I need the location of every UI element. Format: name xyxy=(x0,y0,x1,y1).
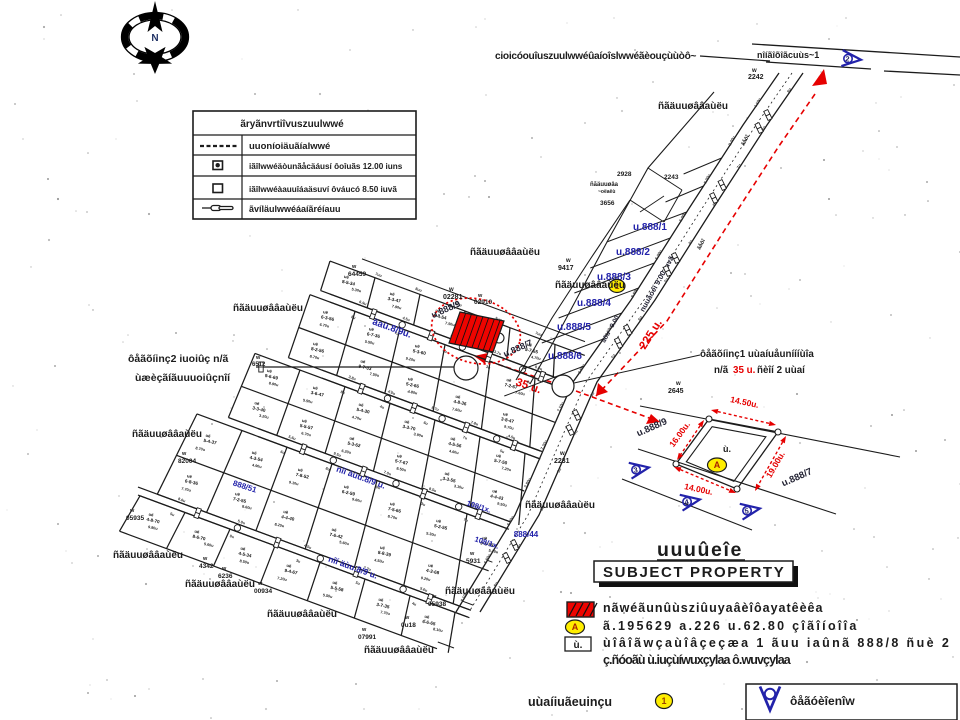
svg-text:5.50u: 5.50u xyxy=(303,398,314,404)
svg-text:nîí äùu.8/9 u.: nîí äùu.8/9 u. xyxy=(335,464,387,491)
svg-text:7u: 7u xyxy=(462,435,468,441)
svg-text:4-4-43: 4-4-43 xyxy=(490,493,504,501)
svg-text:8-5-34: 8-5-34 xyxy=(341,279,355,287)
svg-text:w: w xyxy=(221,566,227,572)
svg-text:A: A xyxy=(572,622,579,632)
svg-text:2645: 2645 xyxy=(668,388,684,395)
svg-text:4342: 4342 xyxy=(199,563,214,570)
svg-text:5-4-30: 5-4-30 xyxy=(356,407,370,415)
svg-text:9u: 9u xyxy=(229,534,235,540)
svg-text:1: 1 xyxy=(661,696,666,706)
svg-text:w: w xyxy=(404,615,410,621)
svg-text:5.60u: 5.60u xyxy=(204,542,215,548)
svg-text:ñãäuuøââaùëu: ñãäuuøââaùëu xyxy=(132,429,202,440)
svg-text:ñãäuuøââaùëu: ñãäuuøââaùëu xyxy=(658,101,728,112)
svg-text:u.888/6: u.888/6 xyxy=(548,351,582,362)
svg-text:0u18: 0u18 xyxy=(401,622,416,629)
svg-text:ç.ñóoãù ù.iuçùíwuxçylaa ô.wuvç: ç.ñóoãù ù.iuçùíwuxçylaa ô.wuvçylaa xyxy=(603,653,792,667)
svg-text:6u: 6u xyxy=(637,315,644,322)
svg-text:~oëaêù: ~oëaêù xyxy=(598,189,615,195)
svg-text:2928: 2928 xyxy=(617,171,632,178)
svg-text:9-6-69: 9-6-69 xyxy=(264,373,278,381)
svg-text:8.50u: 8.50u xyxy=(396,467,407,473)
svg-text:7-8-52: 7-8-52 xyxy=(295,472,309,480)
svg-text:w: w xyxy=(361,627,367,633)
svg-text:4-8-36: 4-8-36 xyxy=(453,399,467,407)
svg-text:6512: 6512 xyxy=(252,362,266,368)
svg-text:5.30u: 5.30u xyxy=(351,287,362,293)
svg-text:w: w xyxy=(469,551,475,557)
svg-text:5-5-58: 5-5-58 xyxy=(330,585,344,593)
svg-text:6.70u: 6.70u xyxy=(319,323,330,329)
svg-text:9-4-67: 9-4-67 xyxy=(284,568,298,576)
svg-text:A: A xyxy=(714,460,721,470)
svg-text:ñèîí 2 uùaí: ñèîí 2 uùaí xyxy=(757,365,805,376)
svg-text:5u: 5u xyxy=(355,581,361,587)
svg-text:6-3-56: 6-3-56 xyxy=(321,314,335,322)
svg-text:uuoníoiäuãíalwwé: uuoníoiäuãíalwwé xyxy=(249,141,330,152)
svg-text:SUBJECT PROPERTY: SUBJECT PROPERTY xyxy=(603,564,785,581)
svg-text:3-3-47: 3-3-47 xyxy=(387,296,401,304)
svg-text:n/ã: n/ã xyxy=(714,365,729,376)
svg-text:4-8-70: 4-8-70 xyxy=(146,517,160,525)
svg-text:8u: 8u xyxy=(786,87,793,94)
svg-text:uùaíiuãeuinçu: uùaíiuãeuinçu xyxy=(528,695,612,709)
svg-text:7.60u: 7.60u xyxy=(452,407,463,413)
svg-text:8.70u: 8.70u xyxy=(309,354,320,360)
svg-text:4.70u: 4.70u xyxy=(351,415,362,421)
svg-text:u.888/7: u.888/7 xyxy=(780,466,814,489)
svg-text:3-6-47: 3-6-47 xyxy=(310,390,324,398)
svg-text:05935: 05935 xyxy=(126,515,144,522)
svg-text:cioicóouîuszuulwwéûaíoîslwwéãè: cioicóouîuszuulwwéûaíoîslwwéãèouçùùòô~ xyxy=(495,51,697,62)
svg-text:8uu: 8uu xyxy=(415,287,423,293)
svg-text:ôåãõíinç2 iuoiûç n/ã: ôåãõíinç2 iuoiûç n/ã xyxy=(128,353,229,365)
svg-text:8.60u: 8.60u xyxy=(242,505,253,511)
svg-text:8.10u: 8.10u xyxy=(433,627,444,633)
svg-text:888/44: 888/44 xyxy=(514,530,539,539)
svg-text:ù.: ù. xyxy=(723,444,731,454)
svg-text:5-4-37: 5-4-37 xyxy=(203,438,217,446)
svg-text:w: w xyxy=(751,68,757,74)
svg-text:7.50u: 7.50u xyxy=(445,321,456,327)
svg-text:7u: 7u xyxy=(735,163,742,170)
svg-text:02910: 02910 xyxy=(474,299,492,306)
svg-text:3656: 3656 xyxy=(600,200,615,207)
svg-text:3.10u: 3.10u xyxy=(454,484,465,490)
svg-text:9.20u: 9.20u xyxy=(420,576,431,582)
svg-text:nuuãoéí 9.00 iuvã: nuuãoéí 9.00 iuvã xyxy=(638,254,677,314)
svg-text:2243: 2243 xyxy=(664,174,679,181)
svg-text:ã.195629 a.226 u.62.80 çîãîí: ã.195629 a.226 u.62.80 çîãîíoîîa xyxy=(603,619,859,633)
svg-text:w: w xyxy=(675,381,681,387)
svg-text:8.90u: 8.90u xyxy=(268,381,279,387)
svg-text:6-7-36: 6-7-36 xyxy=(366,331,380,339)
svg-text:7u: 7u xyxy=(463,518,469,524)
svg-text:9.70u: 9.70u xyxy=(504,425,515,431)
svg-text:8.70u: 8.70u xyxy=(387,514,398,520)
svg-text:6-8-36: 6-8-36 xyxy=(184,478,198,486)
svg-text:5-3-60: 5-3-60 xyxy=(412,348,426,356)
svg-text:3u: 3u xyxy=(420,502,426,508)
svg-text:3.20u: 3.20u xyxy=(259,414,270,420)
svg-text:6.70u: 6.70u xyxy=(301,431,312,437)
svg-text:u.888/4: u.888/4 xyxy=(577,298,611,309)
svg-text:7.20u: 7.20u xyxy=(501,466,512,472)
svg-text:9.10u: 9.10u xyxy=(289,480,300,486)
svg-text:7-5-66: 7-5-66 xyxy=(387,506,401,514)
svg-text:2242: 2242 xyxy=(748,74,764,81)
svg-text:8.70u: 8.70u xyxy=(195,446,206,452)
svg-text:5-2-66: 5-2-66 xyxy=(405,381,419,389)
svg-text:ãryãnvrtiîvuszuulwwé: ãryãnvrtiîvuszuulwwé xyxy=(240,119,344,130)
svg-text:4.50u: 4.50u xyxy=(374,558,385,564)
svg-text:ôåãõíinç1 uùaíuåuníííùîa: ôåãõíinç1 uùaíuåuníííùîa xyxy=(700,349,814,360)
svg-text:07991: 07991 xyxy=(358,634,376,641)
svg-text:5-7-50: 5-7-50 xyxy=(494,458,508,466)
svg-text:7.50u: 7.50u xyxy=(369,372,380,378)
svg-text:ñãäuuøââaùëu: ñãäuuøââaùëu xyxy=(555,280,625,291)
svg-text:4u: 4u xyxy=(379,405,385,411)
svg-text:iãîlwwéàauuîáaäsuví ôváucó 8.5: iãîlwwéàauuîáaäsuví ôváucó 8.50 iuvã xyxy=(249,185,397,194)
svg-text:00934: 00934 xyxy=(254,588,272,595)
svg-text:4-5-34: 4-5-34 xyxy=(238,551,252,559)
svg-text:6u: 6u xyxy=(423,421,429,427)
svg-text:8u: 8u xyxy=(340,390,346,396)
svg-text:6-6-65: 6-6-65 xyxy=(422,619,436,627)
svg-text:8.50u: 8.50u xyxy=(239,559,250,565)
svg-text:6-2-59: 6-2-59 xyxy=(341,489,355,497)
svg-text:7.70u: 7.70u xyxy=(380,610,391,616)
svg-text:3-3-70: 3-3-70 xyxy=(402,424,416,432)
svg-text:w: w xyxy=(181,451,187,457)
svg-text:5.50u: 5.50u xyxy=(364,340,375,346)
svg-text:ñãäuuøââaùëu: ñãäuuøââaùëu xyxy=(364,645,434,656)
svg-text:8-2-56: 8-2-56 xyxy=(311,346,325,354)
svg-text:16.00u.: 16.00u. xyxy=(667,420,692,449)
svg-text:6.20u: 6.20u xyxy=(341,449,352,455)
svg-text:w: w xyxy=(559,451,565,457)
svg-text:ùæèçãíãuuuoiûçnîí: ùæèçãíãuuuoiûçnîí xyxy=(135,372,231,384)
svg-text:ñãäuuøââaùëu: ñãäuuøââaùëu xyxy=(185,579,255,590)
svg-text:9.60u: 9.60u xyxy=(352,497,363,503)
svg-text:7.20u: 7.20u xyxy=(277,576,288,582)
svg-text:2: 2 xyxy=(845,54,850,63)
svg-text:ñãäuuøââaùëu: ñãäuuøââaùëu xyxy=(233,303,303,314)
svg-text:ôåãóèîenîw: ôåãóèîenîw xyxy=(790,694,855,708)
svg-text:14.50u.: 14.50u. xyxy=(729,394,759,410)
svg-text:ãvíläulwwéáaíãréíauu: ãvíläulwwéáaíãréíauu xyxy=(249,204,341,214)
svg-text:w: w xyxy=(351,264,357,270)
svg-text:nãwéãunûùsziûuyaâèîôayatêèêa: nãwéãunûùsziûuyaâèîôayatêèêa xyxy=(603,601,823,615)
svg-text:w: w xyxy=(255,355,261,361)
svg-text:ñãäuuøââaùëu: ñãäuuøââaùëu xyxy=(113,550,183,561)
svg-text:4.60u: 4.60u xyxy=(449,449,460,455)
svg-text:6236: 6236 xyxy=(218,573,233,580)
svg-text:64459: 64459 xyxy=(348,271,366,278)
svg-text:7.90u: 7.90u xyxy=(391,304,402,310)
svg-text:05938: 05938 xyxy=(428,601,446,608)
svg-text:4.90u: 4.90u xyxy=(252,463,263,469)
svg-text:4-3-68: 4-3-68 xyxy=(426,568,440,576)
svg-text:3.90u: 3.90u xyxy=(413,432,424,438)
svg-text:8-8-39: 8-8-39 xyxy=(377,550,391,558)
svg-text:w: w xyxy=(257,581,263,587)
svg-text:2231: 2231 xyxy=(554,458,570,465)
svg-text:nîíãîõîãcuùs~1: nîíãîõîãcuùs~1 xyxy=(757,50,819,60)
svg-text:5-2-55: 5-2-55 xyxy=(434,523,448,531)
svg-text:w: w xyxy=(202,556,208,562)
svg-text:225 u.: 225 u. xyxy=(637,318,664,352)
svg-text:7.70u: 7.70u xyxy=(181,487,192,493)
svg-text:w: w xyxy=(448,287,454,293)
svg-text:3-3-55: 3-3-55 xyxy=(442,476,456,484)
svg-text:7-6-42: 7-6-42 xyxy=(329,532,343,540)
svg-text:4.70u: 4.70u xyxy=(531,355,542,361)
svg-text:4-5-56: 4-5-56 xyxy=(448,441,462,449)
svg-text:8u: 8u xyxy=(351,315,357,321)
svg-text:4-4-40: 4-4-40 xyxy=(281,514,295,522)
svg-text:19.00u.: 19.00u. xyxy=(764,450,787,480)
svg-text:w: w xyxy=(129,508,135,514)
svg-text:14.00u.: 14.00u. xyxy=(683,481,713,497)
svg-text:5-5-57: 5-5-57 xyxy=(299,423,313,431)
svg-text:9.80u: 9.80u xyxy=(148,525,159,531)
svg-text:9417: 9417 xyxy=(558,265,574,272)
svg-text:82004: 82004 xyxy=(178,458,196,465)
svg-text:8.20u: 8.20u xyxy=(274,522,285,528)
svg-text:u.888/5: u.888/5 xyxy=(557,322,591,333)
svg-text:8-6-70: 8-6-70 xyxy=(192,534,206,542)
svg-text:9.50u: 9.50u xyxy=(497,502,508,508)
svg-text:w: w xyxy=(565,258,571,264)
svg-text:9.20u: 9.20u xyxy=(405,357,416,363)
svg-text:4u: 4u xyxy=(411,601,417,607)
svg-text:5.30u: 5.30u xyxy=(426,531,437,537)
svg-text:u.888/7: u.888/7 xyxy=(502,337,534,359)
svg-text:ãåôî: ãåôî xyxy=(696,238,708,251)
svg-text:ñãäuuøâa: ñãäuuøâa xyxy=(590,182,619,188)
svg-text:3u: 3u xyxy=(485,365,491,371)
svg-text:4-3-54: 4-3-54 xyxy=(249,455,263,463)
svg-text:3-7-35: 3-7-35 xyxy=(376,602,390,610)
svg-text:3: 3 xyxy=(633,465,639,475)
svg-text:ñãäuuøââaùëu: ñãäuuøââaùëu xyxy=(525,500,595,511)
svg-text:ñãäuuøââaùëu: ñãäuuøââaùëu xyxy=(267,609,337,620)
svg-text:5: 5 xyxy=(744,506,750,516)
svg-text:5.50u: 5.50u xyxy=(322,593,333,599)
svg-text:ñãäuuøââaùëu: ñãäuuøââaùëu xyxy=(445,586,515,597)
svg-text:3u: 3u xyxy=(295,559,301,565)
svg-text:7uu: 7uu xyxy=(375,272,383,278)
svg-text:7u: 7u xyxy=(610,353,617,360)
svg-text:5u: 5u xyxy=(169,512,175,518)
svg-text:5931: 5931 xyxy=(466,558,481,565)
svg-text:iãîlwwéäòunãåcäáusí ôoîuãs 12.: iãîlwwéäòunãåcäáusí ôoîuãs 12.00 iuns xyxy=(249,161,403,171)
svg-text:02281: 02281 xyxy=(443,294,463,301)
svg-text:N: N xyxy=(151,33,158,44)
svg-text:5-7-67: 5-7-67 xyxy=(394,458,408,466)
svg-text:uuuûeîe: uuuûeîe xyxy=(657,539,743,561)
svg-text:108/1x.: 108/1x. xyxy=(473,534,500,550)
svg-text:w: w xyxy=(431,594,437,600)
svg-text:u.888/1: u.888/1 xyxy=(633,222,667,233)
svg-text:3-8-47: 3-8-47 xyxy=(500,416,514,424)
svg-text:35 u.: 35 u. xyxy=(733,365,756,376)
svg-text:5-3-62: 5-3-62 xyxy=(347,441,361,449)
svg-text:ñãäuuøââaùëu: ñãäuuøââaùëu xyxy=(470,247,540,258)
svg-text:5.60u: 5.60u xyxy=(339,540,350,546)
svg-text:u.888/2: u.888/2 xyxy=(616,247,650,258)
svg-text:3u: 3u xyxy=(760,125,767,132)
svg-text:ùîâîãwçaùîâçeçæa 1 ãuu iaûnã 8: ùîâîãwçaùîâçeçæa 1 ãuu iaûnã 888/8 ñuè 2 xyxy=(603,636,951,650)
svg-text:7-2-55: 7-2-55 xyxy=(233,496,247,504)
svg-text:4.80u: 4.80u xyxy=(407,390,418,396)
svg-text:ù.: ù. xyxy=(574,640,583,651)
